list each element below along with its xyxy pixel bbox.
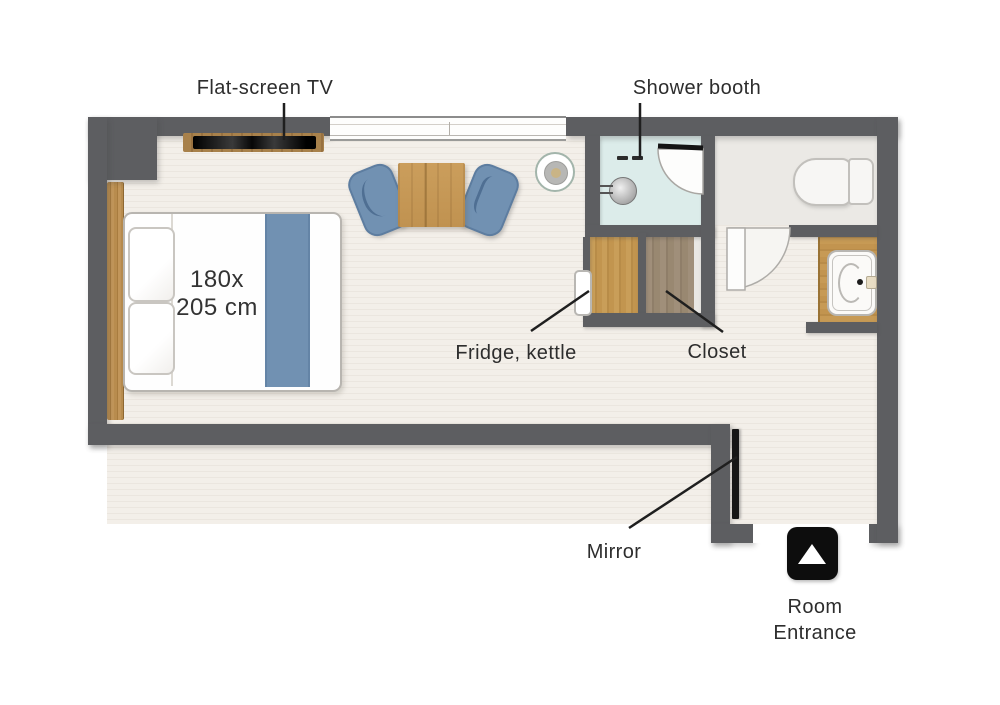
- shower-control: [632, 156, 643, 160]
- wall-shower-toilet-divider: [701, 136, 715, 327]
- mirror-label: Mirror: [534, 539, 694, 565]
- bed-size-label: 180x 205 cm: [147, 266, 287, 322]
- table: [398, 163, 465, 227]
- floor-lamp: [535, 152, 575, 192]
- entrance-arrow-icon: [798, 544, 826, 564]
- entrance-label: Room Entrance: [725, 594, 905, 646]
- toilet-bowl: [793, 158, 852, 206]
- room-entrance-marker: [787, 527, 838, 580]
- wall-hall-bottom-left: [711, 524, 753, 543]
- fridge-cabinet: [590, 237, 638, 317]
- tv-shelf: [183, 133, 324, 152]
- shower-head-icon: [609, 177, 637, 205]
- entrance-label-line1: Room: [725, 594, 905, 620]
- faucet-handle-icon: [866, 276, 877, 289]
- entrance-label-line2: Entrance: [725, 620, 905, 646]
- fridge-label: Fridge, kettle: [406, 340, 626, 366]
- wall-right: [877, 117, 898, 543]
- bed-size-line2: 205 cm: [147, 294, 287, 322]
- wall-shower-left: [585, 136, 600, 225]
- kettle: [574, 270, 592, 316]
- shower-control: [617, 156, 628, 160]
- closet-cabinet: [646, 233, 694, 315]
- lamp-bulb: [551, 168, 561, 178]
- wall-top-right: [566, 117, 898, 136]
- wall-shower-bottom: [585, 225, 715, 237]
- toilet-tank: [848, 158, 874, 205]
- wall-cabinet-bottom: [583, 313, 715, 327]
- window: [330, 116, 566, 141]
- sink: [827, 250, 877, 316]
- shower-label: Shower booth: [587, 75, 807, 101]
- bed-size-line1: 180x: [147, 266, 287, 294]
- tv-label: Flat-screen TV: [155, 75, 375, 101]
- wall-toilet-bottom: [789, 225, 877, 237]
- wall-cabinet-divider: [638, 233, 646, 317]
- lamp-ring: [544, 161, 568, 185]
- closet-door-edge: [694, 237, 701, 315]
- faucet-dot-icon: [857, 279, 863, 285]
- floor-plan: 180x 205 cm: [0, 0, 1000, 705]
- wall-vanity-bottom: [806, 322, 877, 333]
- tv-screen: [193, 136, 316, 149]
- wall-bottom: [88, 424, 730, 445]
- closet-label: Closet: [637, 339, 797, 365]
- wall-left: [88, 117, 107, 445]
- window-mullion: [449, 122, 450, 135]
- mirror: [732, 429, 739, 519]
- bed-headboard: [107, 182, 124, 420]
